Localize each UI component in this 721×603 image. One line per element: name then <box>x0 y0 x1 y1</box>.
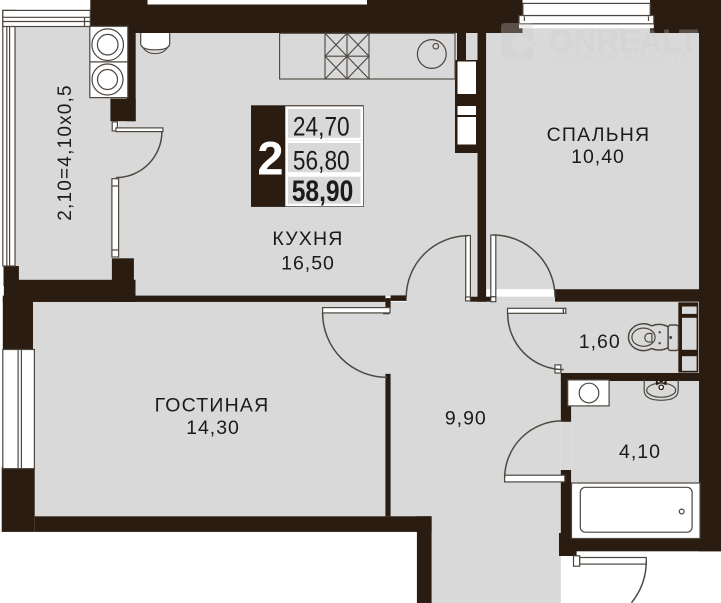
svg-text:2: 2 <box>257 131 283 184</box>
svg-text:СПАЛЬНЯ: СПАЛЬНЯ <box>547 124 651 146</box>
svg-text:16,50: 16,50 <box>281 253 335 275</box>
svg-text:2,10=4,10x0,5: 2,10=4,10x0,5 <box>55 84 76 221</box>
svg-text:9,90: 9,90 <box>445 408 487 430</box>
svg-text:24,70: 24,70 <box>293 112 350 142</box>
svg-text:14,30: 14,30 <box>186 417 240 439</box>
svg-text:ГОСТИНАЯ: ГОСТИНАЯ <box>155 395 270 417</box>
svg-text:58,90: 58,90 <box>292 174 354 208</box>
svg-text:1,60: 1,60 <box>579 331 621 353</box>
svg-text:КУХНЯ: КУХНЯ <box>272 228 343 250</box>
svg-text:56,80: 56,80 <box>293 145 350 175</box>
svg-text:НЕДВИЖИМОСТЬ: НЕДВИЖИМОСТЬ <box>550 50 695 64</box>
svg-text:10,40: 10,40 <box>571 146 625 168</box>
svg-text:4,10: 4,10 <box>619 441 661 463</box>
